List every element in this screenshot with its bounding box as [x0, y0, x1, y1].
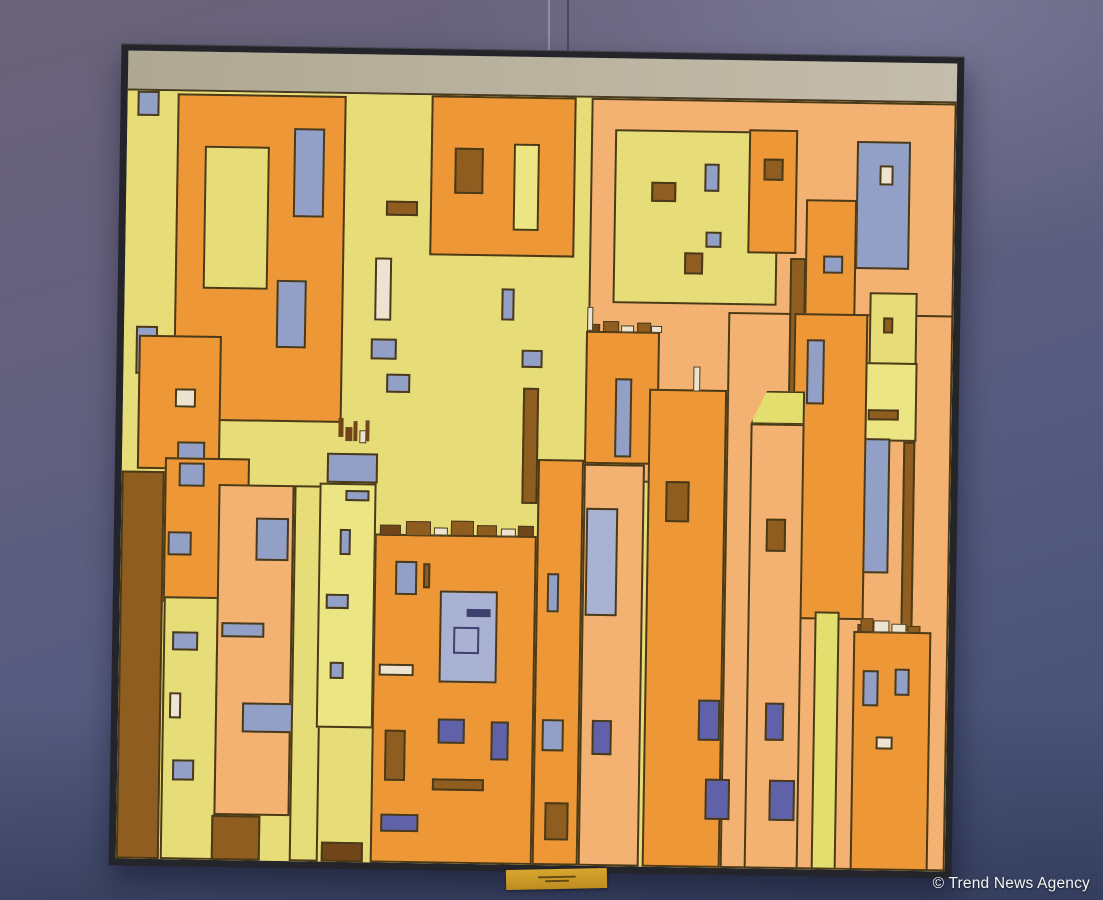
figure [338, 418, 343, 436]
gallery-wall: © Trend News Agency [0, 0, 1103, 900]
win [542, 719, 564, 752]
win [221, 622, 264, 638]
win [862, 670, 879, 706]
win [438, 718, 466, 744]
win [665, 481, 690, 523]
window-big-blue2 [585, 508, 619, 617]
win [423, 564, 430, 589]
win [172, 759, 195, 780]
win [521, 350, 543, 368]
win [384, 730, 406, 781]
win [169, 693, 181, 719]
rubble [621, 325, 634, 333]
win [704, 779, 729, 820]
rubble [637, 323, 651, 333]
rubble [908, 626, 921, 633]
rubble [500, 529, 515, 537]
win [763, 158, 784, 181]
pole-cream-f [587, 307, 594, 332]
win [501, 288, 515, 320]
rubble [518, 526, 534, 537]
bldg-br-corner [850, 631, 932, 871]
win [256, 517, 290, 561]
label-plaque [506, 868, 607, 890]
win [883, 317, 894, 333]
win [172, 631, 198, 651]
win [339, 529, 350, 555]
rubble [451, 520, 474, 536]
painting-frame [109, 43, 965, 878]
plaque-text-line [545, 880, 569, 883]
bldg-a-window-blue1 [292, 128, 325, 218]
figure [345, 427, 353, 441]
win [879, 165, 893, 185]
bar-navy [467, 609, 490, 618]
painting-canvas [116, 51, 958, 872]
painting-artwork [116, 91, 957, 872]
win [168, 531, 192, 555]
win [345, 490, 369, 501]
bldg-a-window-yellow [203, 146, 270, 290]
win [329, 662, 344, 679]
win [651, 182, 676, 202]
win [875, 737, 893, 750]
win [395, 561, 417, 595]
rubble [860, 618, 873, 632]
bldg-d [747, 129, 798, 253]
pole-cream [693, 367, 701, 392]
win [706, 232, 722, 248]
win [379, 664, 414, 676]
figure [354, 421, 358, 441]
win [806, 339, 825, 405]
block-dkbrown [320, 842, 363, 863]
win [175, 389, 196, 408]
win [614, 379, 633, 458]
watermark-text: © Trend News Agency [933, 875, 1090, 893]
win [684, 252, 703, 275]
win [454, 148, 484, 195]
bar-blue [326, 453, 378, 483]
stripe-yellow [810, 611, 840, 869]
win [513, 143, 540, 230]
square-inner [453, 626, 479, 654]
win [386, 373, 410, 393]
win [375, 257, 393, 320]
bldg-a-window-blue2 [275, 280, 307, 348]
win [432, 778, 484, 791]
win [490, 721, 509, 760]
rubble [873, 621, 890, 633]
win [326, 594, 349, 609]
col-brown-left [116, 471, 165, 859]
bldg-b [429, 95, 577, 257]
win [380, 813, 418, 832]
win [592, 720, 612, 756]
plaque-text-line [537, 876, 575, 879]
win [768, 780, 795, 821]
rubble [603, 321, 619, 333]
figure [365, 420, 369, 442]
bldg-blue-tall [855, 141, 911, 270]
block-brown [211, 815, 261, 860]
win [547, 573, 560, 612]
win [371, 339, 397, 360]
win [704, 163, 719, 192]
win [179, 462, 205, 486]
rubble [651, 326, 662, 333]
rubble [406, 521, 431, 536]
win [868, 409, 899, 420]
win [764, 703, 784, 741]
win [823, 256, 843, 274]
win [242, 702, 293, 733]
rubble [477, 525, 497, 537]
rubble [891, 624, 906, 633]
win [386, 201, 418, 217]
win [698, 699, 720, 740]
win [544, 802, 569, 841]
chip-topleft [137, 91, 160, 116]
rubble [434, 527, 447, 536]
win [894, 669, 909, 696]
win [766, 518, 786, 551]
stripe-brown-mid [521, 388, 539, 504]
rubble [379, 525, 401, 536]
